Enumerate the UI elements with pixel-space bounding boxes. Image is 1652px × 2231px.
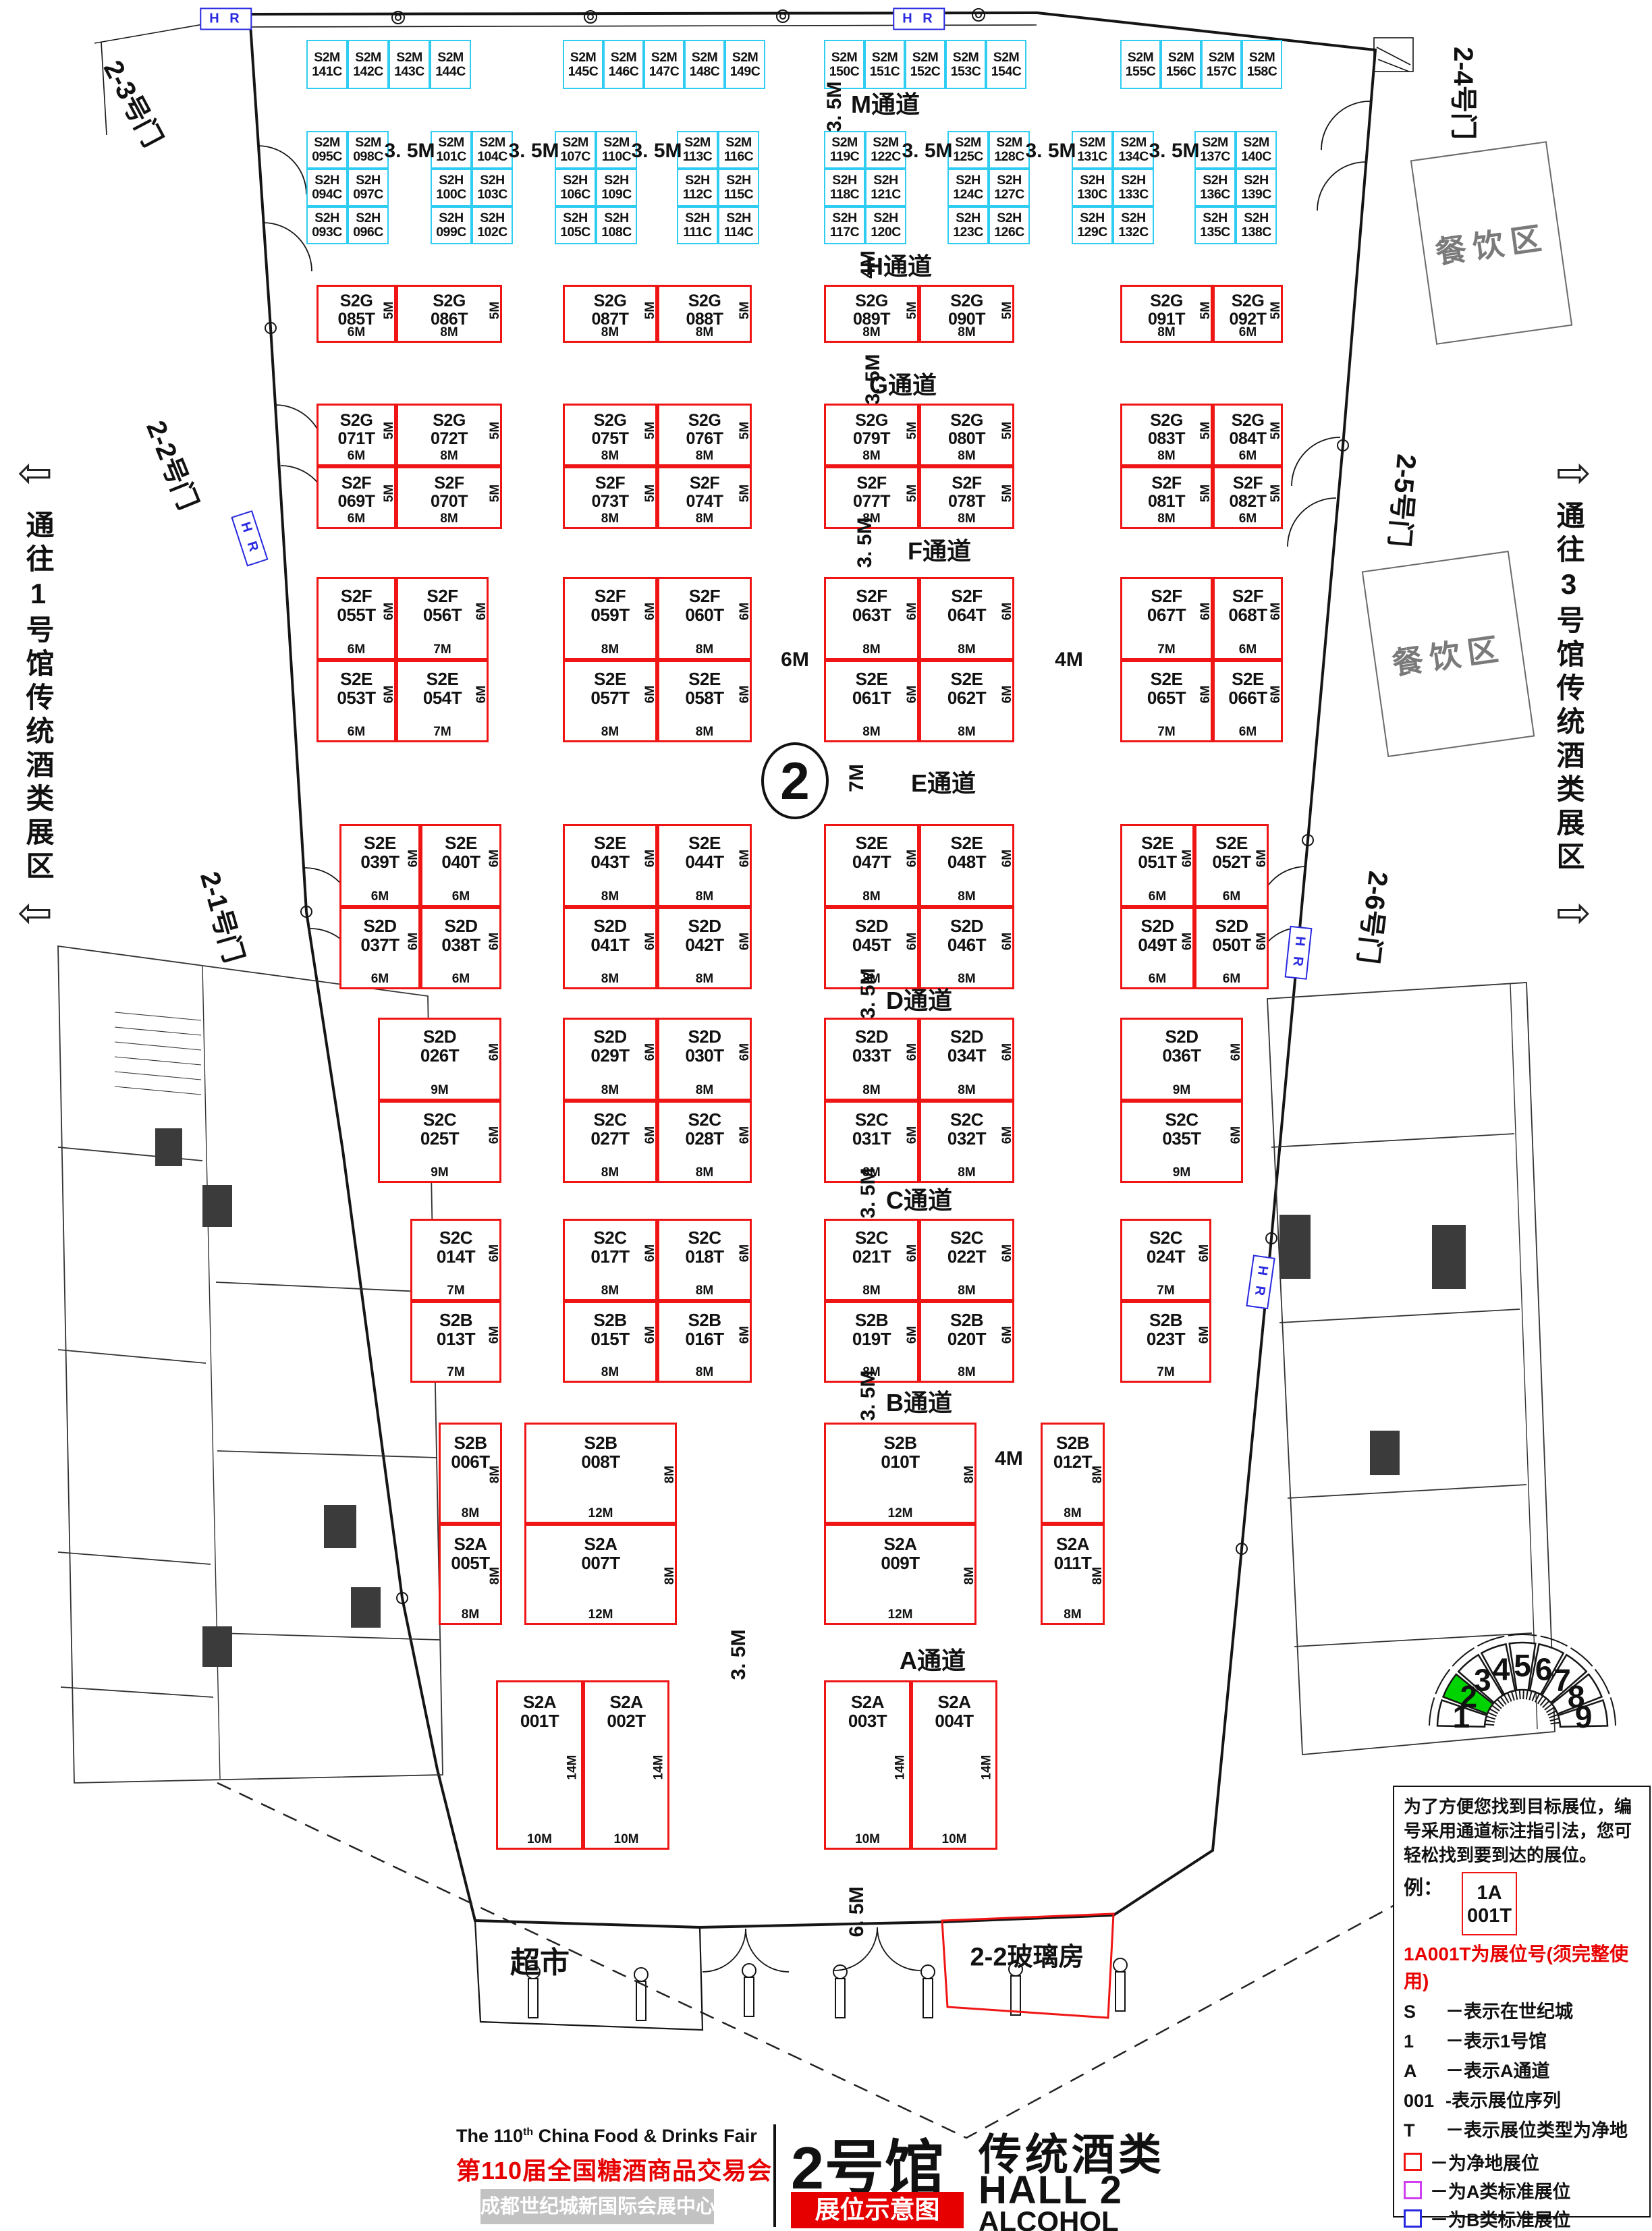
legend-code-line: 1－表示1号馆 [1404,2027,1640,2053]
corridor-text-left: 通往1号馆传统酒类展区 [18,510,59,885]
right-arrow-icon: ⇨ [1556,448,1591,497]
legend-code-line: A－表示A通道 [1404,2056,1640,2083]
map-type-badge: 展位示意图 [791,2192,964,2228]
hall-number-circle: 2 [761,742,829,819]
market-label: 超市 [510,1938,570,1981]
dining-area-1: 餐饮区 [1410,141,1572,345]
legend-example-booth: 1A 001T [1462,1872,1517,1935]
corridor-text-right: 通往3号馆传统酒类展区 [1548,501,1589,875]
fair-title-cn: 第110届全国糖酒商品交易会 [456,2151,772,2186]
legend-code-lines: S－表示在世纪城1－表示1号馆A－表示A通道001-表示展位序列T－表示展位类型… [1404,1997,1640,2142]
hall-category-en: ALCOHOL [979,2205,1119,2231]
legend-example-label: 例： [1404,1872,1443,1900]
fire-hydrant-icon: H R [200,8,252,30]
legend-code-line: T－表示展位类型为净地 [1404,2116,1640,2142]
legend-booth-type: －为净地展位 [1404,2149,1640,2175]
booth-type-swatch [1404,2153,1422,2171]
legend-booth-types: －为净地展位－为A类标准展位－为B类标准展位－为C类标准展位－为D类标准展位 [1404,2149,1640,2231]
booth-type-swatch [1404,2181,1422,2199]
title-divider [773,2124,776,2227]
fire-hydrant-icon: H R [231,510,268,567]
legend-example-note: 1A001T为展位号(须完整使用) [1404,1939,1640,1993]
example-booth-line1: 1A [1463,1881,1516,1905]
glass-room-label: 2-2玻璃房 [970,1936,1084,1973]
venue-name: 成都世纪城新国际会展中心 [480,2189,714,2224]
fire-hydrant-icon: H R [1246,1255,1275,1309]
legend-code-line: 001-表示展位序列 [1404,2086,1640,2112]
dining-area-2: 餐饮区 [1362,551,1535,757]
fire-hydrant-icon: H R [1285,926,1313,980]
fire-hydrant-icon: H R [893,8,945,30]
left-arrow-icon: ⇦ [18,888,53,937]
booth-type-swatch [1404,2209,1422,2228]
right-arrow-icon: ⇨ [1556,888,1591,937]
legend-booth-type: －为B类标准展位 [1404,2205,1640,2231]
fair-title-en: The 110th China Food & Drinks Fair [456,2126,757,2147]
floorplan-page: 123456789 S2M 141CS2M 142CS2M 143CS2M 14… [0,0,1652,2231]
legend-panel: 为了方便您找到目标展位，编号采用通道标注指引法，您可轻松找到要到达的展位。 例：… [1393,1786,1651,2218]
legend-intro: 为了方便您找到目标展位，编号采用通道标注指引法，您可轻松找到要到达的展位。 [1404,1795,1640,1868]
example-booth-line2: 001T [1463,1904,1516,1928]
legend-code-line: S－表示在世纪城 [1404,1997,1640,2023]
legend-booth-type: －为A类标准展位 [1404,2177,1640,2203]
left-arrow-icon: ⇦ [18,448,53,497]
